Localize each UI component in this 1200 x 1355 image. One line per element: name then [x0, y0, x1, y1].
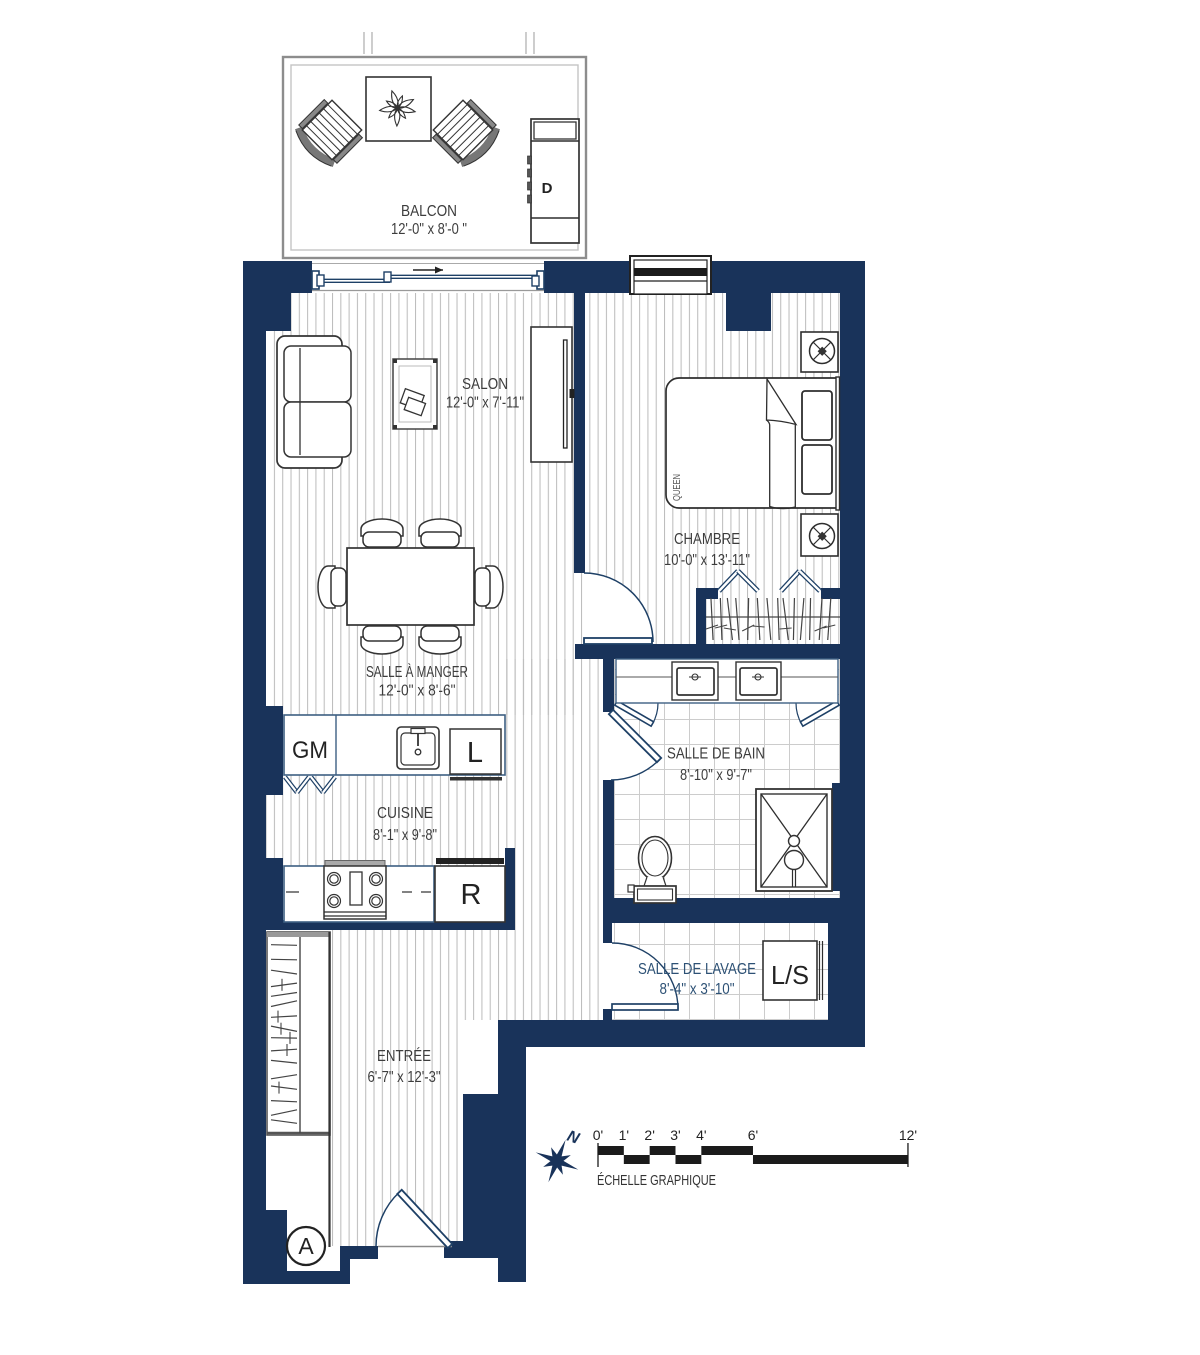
- svg-text:12'-0" x 7'-11": 12'-0" x 7'-11": [446, 395, 524, 412]
- svg-text:8'-1" x 9'-8": 8'-1" x 9'-8": [373, 827, 437, 844]
- svg-text:D: D: [542, 180, 553, 197]
- svg-text:2': 2': [644, 1127, 654, 1143]
- svg-text:4': 4': [696, 1127, 706, 1143]
- svg-text:L: L: [467, 737, 483, 769]
- svg-text:QUEEN: QUEEN: [672, 474, 683, 501]
- svg-text:1': 1': [619, 1127, 629, 1143]
- svg-text:SALON: SALON: [462, 376, 508, 393]
- svg-text:L/S: L/S: [771, 960, 809, 990]
- svg-text:BALCON: BALCON: [401, 203, 457, 220]
- svg-text:8'-4" x 3'-10": 8'-4" x 3'-10": [660, 981, 735, 998]
- svg-text:SALLE À MANGER: SALLE À MANGER: [366, 662, 468, 681]
- svg-text:SALLE DE LAVAGE: SALLE DE LAVAGE: [638, 961, 756, 978]
- svg-text:12'-0" x 8'-6": 12'-0" x 8'-6": [379, 683, 456, 700]
- svg-text:3': 3': [670, 1127, 680, 1143]
- svg-text:ENTRÉE: ENTRÉE: [377, 1046, 431, 1065]
- svg-text:A: A: [298, 1233, 314, 1259]
- svg-text:SALLE DE BAIN: SALLE DE BAIN: [667, 746, 765, 763]
- svg-text:CUISINE: CUISINE: [377, 805, 433, 822]
- svg-text:12': 12': [899, 1127, 917, 1143]
- svg-text:0': 0': [593, 1127, 603, 1143]
- svg-text:GM: GM: [292, 737, 328, 764]
- svg-text:CHAMBRE: CHAMBRE: [674, 531, 740, 548]
- svg-text:12'-0" x 8'-0 ": 12'-0" x 8'-0 ": [391, 221, 467, 238]
- svg-text:8'-10" x 9'-7": 8'-10" x 9'-7": [680, 767, 752, 784]
- svg-text:6'-7" x 12'-3": 6'-7" x 12'-3": [368, 1069, 441, 1086]
- svg-text:R: R: [461, 879, 482, 911]
- svg-text:ÉCHELLE GRAPHIQUE: ÉCHELLE GRAPHIQUE: [597, 1172, 716, 1189]
- svg-text:10'-0" x 13'-11": 10'-0" x 13'-11": [664, 552, 750, 569]
- svg-text:6': 6': [748, 1127, 758, 1143]
